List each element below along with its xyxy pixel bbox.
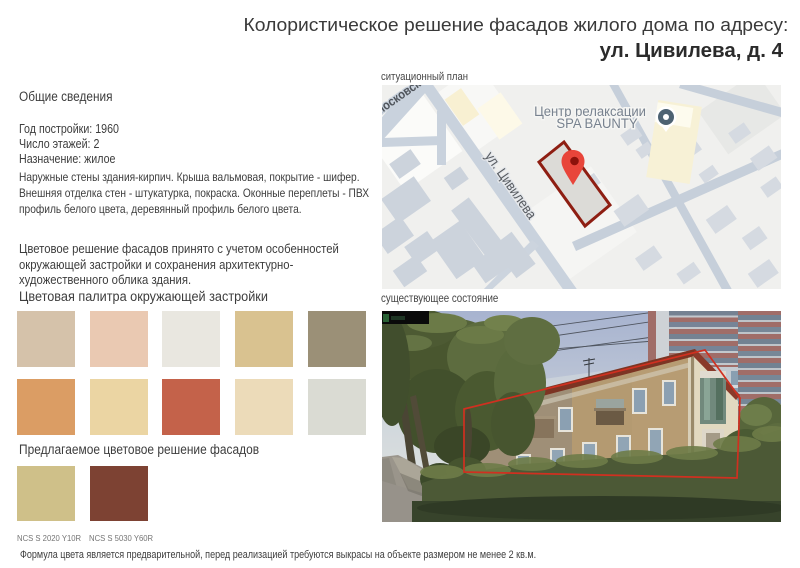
svg-text:SPA BAUNTY: SPA BAUNTY xyxy=(556,116,637,131)
